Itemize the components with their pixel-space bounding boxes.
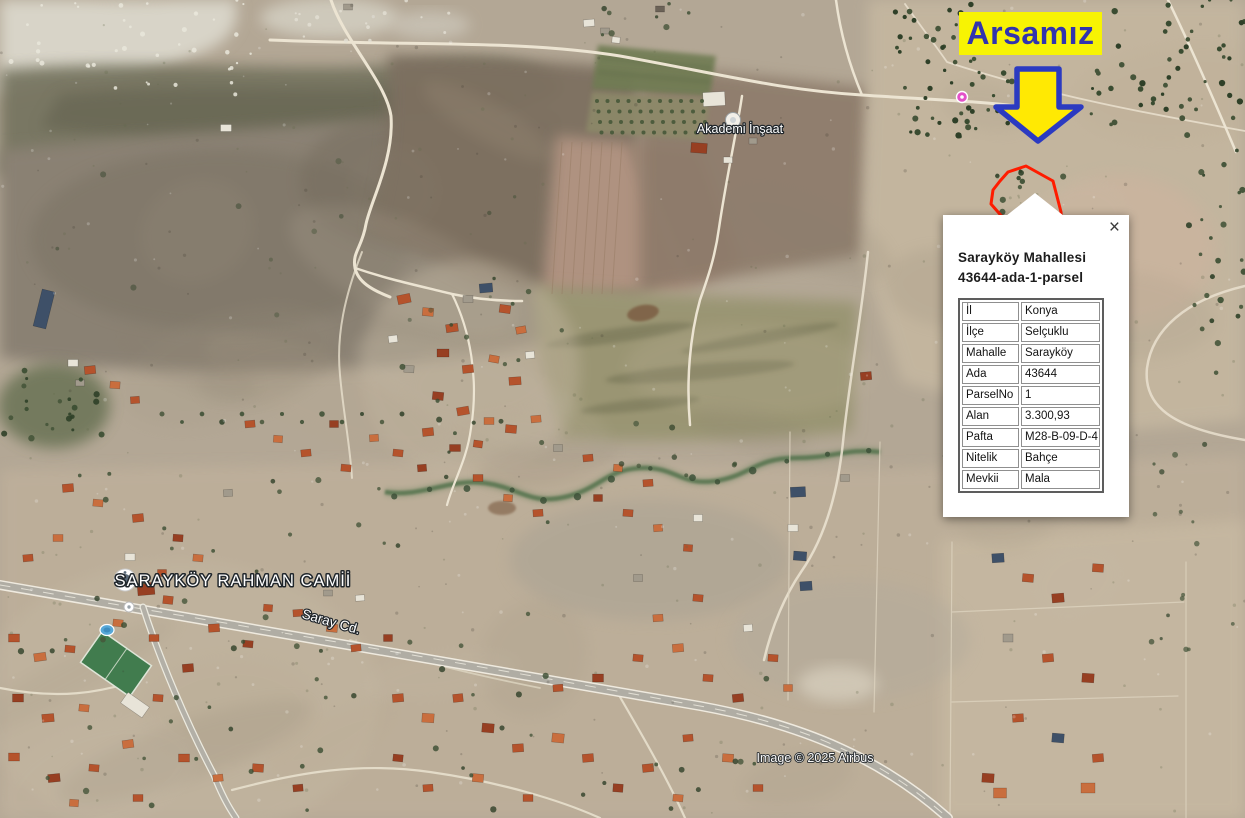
table-row: İlçeSelçuklu: [962, 323, 1100, 342]
table-row: NitelikBahçe: [962, 449, 1100, 468]
table-row: MahalleSarayköy: [962, 344, 1100, 363]
parcel-info-popup: × Sarayköy Mahallesi 43644-ada-1-parsel …: [943, 215, 1129, 517]
popup-title-line2: 43644-ada-1-parsel: [958, 268, 1117, 288]
popup-title-line1: Sarayköy Mahallesi: [958, 248, 1117, 268]
pink-poi-icon[interactable]: [957, 92, 968, 103]
row-label: Nitelik: [962, 449, 1019, 468]
table-row: Alan3.300,93: [962, 407, 1100, 426]
row-label: Mevkii: [962, 470, 1019, 489]
row-value: M28-B-09-D-4: [1021, 428, 1100, 447]
row-value: Bahçe: [1021, 449, 1100, 468]
akademi-label: Akademi İnşaat: [697, 122, 784, 136]
row-value: 3.300,93: [1021, 407, 1100, 426]
headline-label: Arsamız: [959, 12, 1102, 55]
row-label: ParselNo: [962, 386, 1019, 405]
poi-dot-icon[interactable]: [124, 602, 134, 612]
popup-pointer: [1006, 193, 1064, 216]
table-row: MevkiiMala: [962, 470, 1100, 489]
table-row: İlKonya: [962, 302, 1100, 321]
row-value: 43644: [1021, 365, 1100, 384]
close-icon[interactable]: ×: [1109, 218, 1120, 237]
table-row: PaftaM28-B-09-D-4: [962, 428, 1100, 447]
row-label: Pafta: [962, 428, 1019, 447]
row-label: İl: [962, 302, 1019, 321]
mosque-label: SARAYKÖY RAHMAN CAMİİ: [115, 571, 352, 590]
row-value: Sarayköy: [1021, 344, 1100, 363]
row-label: Alan: [962, 407, 1019, 426]
attribution-label: Image © 2025 Airbus: [757, 751, 874, 765]
row-value: Konya: [1021, 302, 1100, 321]
popup-title: Sarayköy Mahallesi 43644-ada-1-parsel: [958, 248, 1117, 287]
row-value: 1: [1021, 386, 1100, 405]
table-row: Ada43644: [962, 365, 1100, 384]
row-label: Ada: [962, 365, 1019, 384]
row-label: Mahalle: [962, 344, 1019, 363]
row-value: Mala: [1021, 470, 1100, 489]
row-label: İlçe: [962, 323, 1019, 342]
table-row: ParselNo1: [962, 386, 1100, 405]
parcel-table: İlKonya İlçeSelçuklu MahalleSarayköy Ada…: [958, 298, 1104, 493]
pond-icon: [100, 625, 114, 636]
row-value: Selçuklu: [1021, 323, 1100, 342]
